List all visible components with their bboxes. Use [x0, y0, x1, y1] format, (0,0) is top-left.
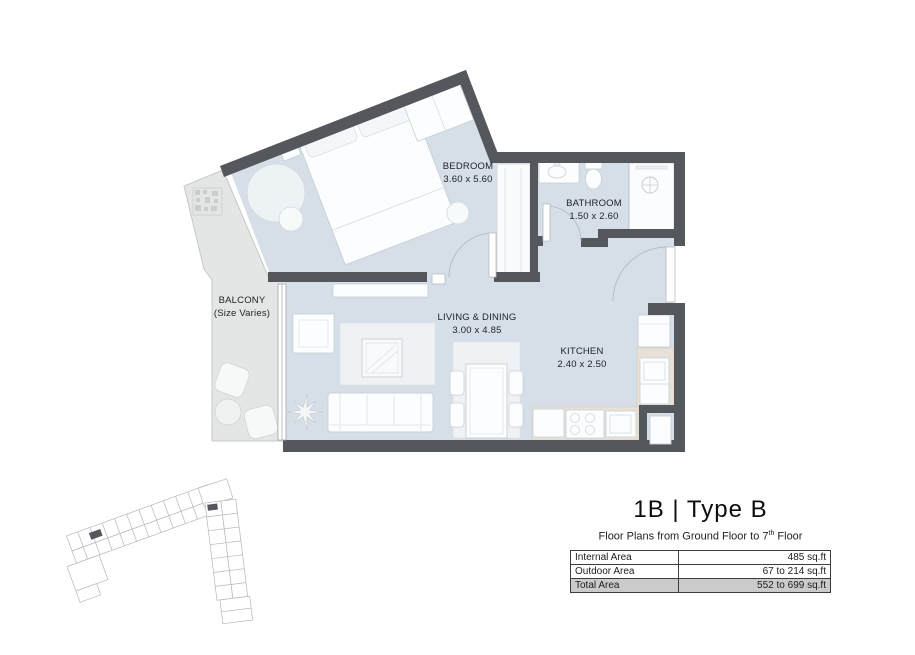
kitchen-sink	[606, 411, 636, 437]
room-name: BEDROOM	[443, 160, 494, 173]
room-label-living-dining: LIVING & DINING 3.00 x 4.85	[437, 311, 516, 337]
room-dims: 1.50 x 2.60	[566, 210, 622, 223]
room-label-bathroom: BATHROOM 1.50 x 2.60	[566, 197, 622, 223]
bathroom-vanity	[539, 162, 579, 183]
closet	[497, 164, 530, 276]
room-label-kitchen: KITCHEN 2.40 x 2.50	[557, 345, 606, 371]
room-name: LIVING & DINING	[437, 311, 516, 324]
table-row-total-area: Total Area 552 to 699 sq.ft	[571, 578, 831, 592]
area-value: 552 to 699 sq.ft	[678, 578, 830, 592]
sofa	[328, 393, 433, 432]
subtitle-text: Floor Plans from Ground Floor to 7	[599, 531, 769, 543]
room-dims: (Size Varies)	[214, 307, 270, 320]
balcony-table	[215, 399, 241, 425]
title-block: 1B | Type B Floor Plans from Ground Floo…	[570, 496, 831, 593]
area-table: Internal Area 485 sq.ft Outdoor Area 67 …	[570, 550, 831, 593]
room-dims: 3.60 x 5.60	[443, 173, 494, 186]
room-label-bedroom: BEDROOM 3.60 x 5.60	[443, 160, 494, 186]
table-row-internal-area: Internal Area 485 sq.ft	[571, 550, 831, 564]
balcony-slider	[278, 284, 286, 440]
coffee-table	[362, 339, 402, 377]
area-label: Outdoor Area	[571, 564, 679, 578]
subtitle-text: Floor	[774, 531, 802, 543]
bedroom-stool	[279, 207, 303, 231]
room-name: BALCONY	[214, 294, 270, 307]
unit-marker	[207, 504, 218, 511]
stove	[566, 410, 604, 438]
shower	[629, 163, 674, 234]
room-label-balcony: BALCONY (Size Varies)	[214, 294, 270, 320]
tv-console	[333, 284, 428, 297]
room-name: BATHROOM	[566, 197, 622, 210]
page: BEDROOM 3.60 x 5.60 BATHROOM 1.50 x 2.60…	[0, 0, 915, 655]
area-label: Internal Area	[571, 550, 679, 564]
armchair	[293, 314, 334, 353]
room-name: KITCHEN	[557, 345, 606, 358]
table-row-outdoor-area: Outdoor Area 67 to 214 sq.ft	[571, 564, 831, 578]
room-dims: 2.40 x 2.50	[557, 358, 606, 371]
floors-subtitle: Floor Plans from Ground Floor to 7th Flo…	[570, 530, 831, 543]
area-label: Total Area	[571, 578, 679, 592]
washer	[650, 416, 671, 444]
dining-set	[450, 342, 523, 438]
counter-unit	[640, 358, 669, 404]
area-value: 485 sq.ft	[678, 550, 830, 564]
key-plan	[57, 479, 252, 624]
area-value: 67 to 214 sq.ft	[678, 564, 830, 578]
unit-type-title: 1B | Type B	[570, 496, 831, 524]
fridge	[638, 315, 670, 347]
bedroom-pouf	[447, 202, 469, 224]
toilet	[585, 162, 602, 189]
room-dims: 3.00 x 4.85	[437, 324, 516, 337]
